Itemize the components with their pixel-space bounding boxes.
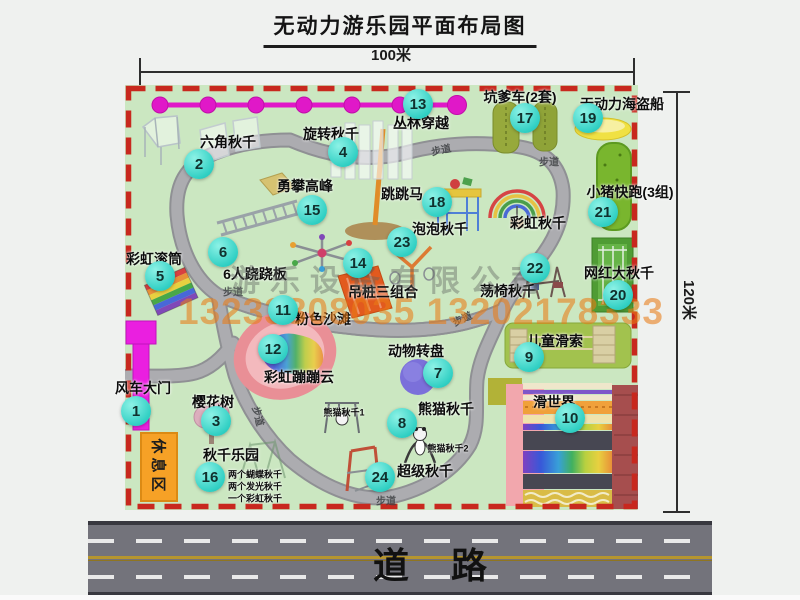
walkway-label: 步道 (223, 284, 243, 299)
attraction-badge-19: 19 (573, 103, 603, 133)
park-map: 休息区 步道 步道 步道 步道 步道 步道 风车大门 六角秋千 樱花树 旋转秋千… (125, 85, 638, 510)
attraction-label-6: 6人跷跷板 (223, 264, 287, 284)
attraction-label-2: 六角秋千 (200, 132, 256, 152)
attraction-badge-12: 12 (258, 334, 288, 364)
width-dimension-tick-right (633, 58, 635, 85)
width-dimension-tick-left (139, 58, 141, 85)
attraction-label-11: 粉色沙滩 (295, 309, 351, 329)
walkway-label: 步道 (539, 154, 559, 169)
attraction-label-14: 吊桩三组合 (348, 282, 418, 302)
hexagon-swing-icon (143, 116, 180, 165)
screenshot-root: 无动力游乐园平面布局图 100米 120米 (0, 0, 800, 600)
attraction-badge-24: 24 (365, 462, 395, 492)
height-dimension-label: 120米 (679, 280, 700, 320)
attraction-label-12: 彩虹蹦蹦云 (264, 367, 334, 387)
attraction-badge-21: 21 (588, 197, 618, 227)
attraction-badge-9: 9 (514, 342, 544, 372)
rest-area: 休息区 (140, 432, 178, 502)
height-dimension-tick-top (663, 91, 690, 93)
attraction-badge-11: 11 (268, 295, 298, 325)
attraction-badge-16: 16 (195, 462, 225, 492)
attraction-badge-23: 23 (387, 227, 417, 257)
attraction-badge-22: 22 (520, 253, 550, 283)
width-dimension-line (140, 71, 634, 73)
walkway-label: 步道 (376, 493, 396, 508)
attraction-badge-15: 15 (297, 195, 327, 225)
attraction-badge-6: 6 (208, 237, 238, 267)
road-label: 道路 (373, 537, 529, 589)
road: 道路 (88, 521, 712, 596)
attraction-badge-7: 7 (423, 358, 453, 388)
height-dimension-tick-bottom (663, 511, 690, 513)
attraction-badge-8: 8 (387, 408, 417, 438)
panda-swing-1-label: 熊猫秋千1 (323, 406, 364, 419)
attraction-label-22: 荡椅秋千 (480, 281, 536, 301)
attraction-label-18: 跳跳马 (381, 184, 423, 204)
attraction-label-23: 泡泡秋千 (412, 219, 468, 239)
attraction-badge-5: 5 (145, 261, 175, 291)
page-footer-strip (0, 595, 800, 600)
attraction-badge-10: 10 (555, 403, 585, 433)
width-dimension-label: 100米 (371, 44, 411, 65)
attraction-badge-18: 18 (422, 187, 452, 217)
height-dimension-line (676, 92, 678, 512)
page-title: 无动力游乐园平面布局图 (264, 10, 537, 48)
attraction-label-8: 熊猫秋千 (418, 399, 474, 419)
attraction-label-24: 超级秋千 (397, 461, 453, 481)
attraction-badge-4: 4 (328, 137, 358, 167)
swing-note-3: 一个彩虹秋千 (228, 492, 282, 505)
attraction-label-1: 风车大门 (115, 378, 171, 398)
panda-swing-2-label: 熊猫秋千2 (427, 442, 468, 455)
attraction-label-15: 勇攀高峰 (277, 176, 333, 196)
attraction-badge-2: 2 (184, 149, 214, 179)
attraction-badge-3: 3 (201, 406, 231, 436)
rest-area-label: 休息区 (149, 438, 170, 495)
attraction-badge-1: 1 (121, 396, 151, 426)
attraction-badge-14: 14 (343, 248, 373, 278)
rainbow-swing-label: 彩虹秋千 (510, 213, 566, 233)
attraction-badge-17: 17 (510, 103, 540, 133)
attraction-badge-20: 20 (603, 280, 633, 310)
attraction-badge-13: 13 (403, 89, 433, 119)
